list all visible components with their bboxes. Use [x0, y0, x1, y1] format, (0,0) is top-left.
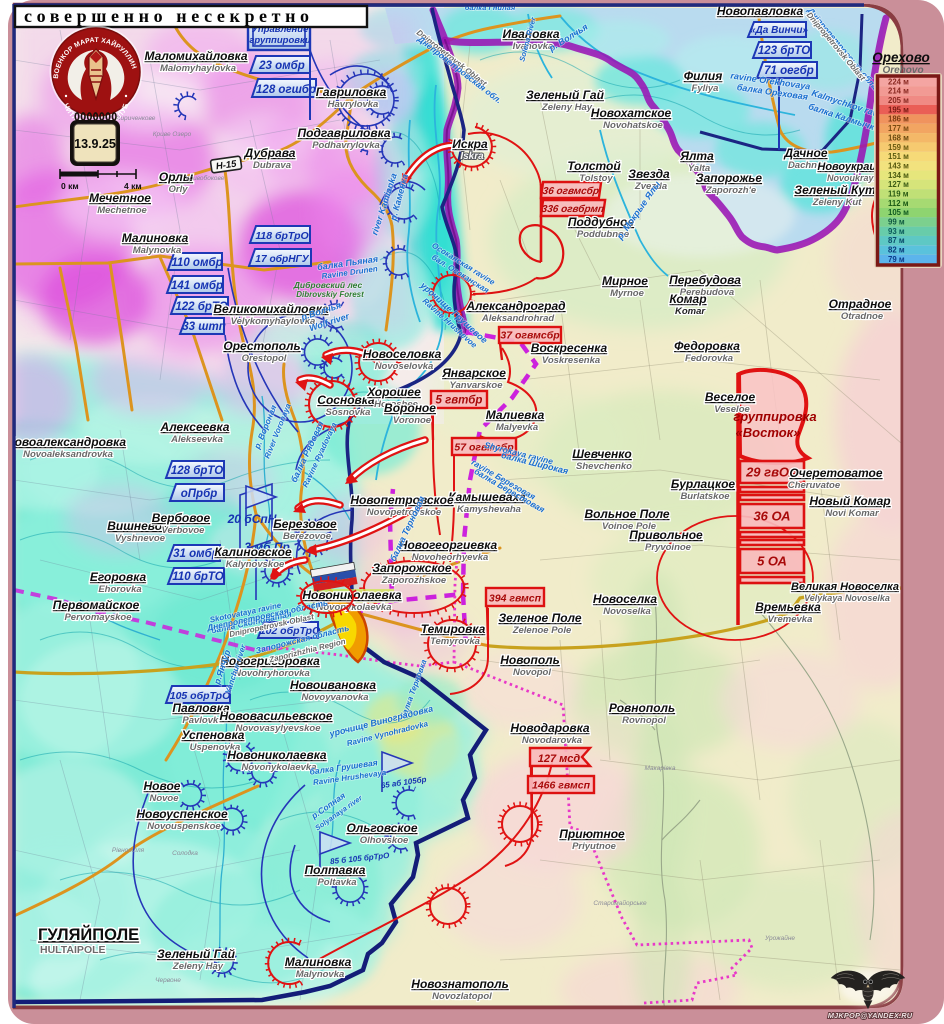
svg-text:13.9.25: 13.9.25	[74, 137, 116, 151]
svg-text:Yanvarskoe: Yanvarskoe	[450, 380, 504, 391]
svg-text:Темировка: Темировка	[421, 622, 486, 636]
svg-text:Novopol: Novopol	[513, 667, 551, 678]
svg-text:«Восток»: «Восток»	[736, 425, 801, 440]
svg-text:Zelenoe Pole: Zelenoe Pole	[512, 625, 572, 636]
svg-text:79 м: 79 м	[888, 255, 905, 264]
svg-text:HULTAIPOLE: HULTAIPOLE	[40, 944, 106, 956]
svg-text:Otradnoe: Otradnoe	[841, 311, 884, 322]
svg-text:MJKPOP@YANDEX.RU: MJKPOP@YANDEX.RU	[828, 1011, 913, 1020]
svg-text:ГУЛЯЙПОЛЕ: ГУЛЯЙПОЛЕ	[38, 925, 139, 944]
svg-text:Толстой: Толстой	[567, 159, 621, 173]
svg-text:Комар: Комар	[669, 292, 706, 306]
svg-text:Старомайорське: Старомайорське	[593, 899, 647, 907]
svg-text:Zeleny Hay: Zeleny Hay	[541, 102, 593, 113]
svg-text:Novi Komar: Novi Komar	[825, 508, 880, 519]
svg-text:Новознатополь: Новознатополь	[411, 977, 508, 991]
svg-text:Березовое: Березовое	[273, 517, 337, 531]
svg-text:Temyrovka: Temyrovka	[430, 636, 480, 647]
svg-text:Зеленый Гай: Зеленый Гай	[157, 947, 236, 961]
svg-text:Poltavka: Poltavka	[317, 877, 356, 888]
svg-text:Орестополь: Орестополь	[223, 339, 300, 353]
svg-text:Великая Новоселка: Великая Новоселка	[791, 581, 899, 593]
svg-text:Zeleny Kut: Zeleny Kut	[812, 197, 862, 208]
svg-text:123 брТО: 123 брТО	[758, 45, 810, 57]
svg-text:Новопетровское: Новопетровское	[350, 493, 454, 507]
svg-text:Макарівка: Макарівка	[645, 764, 676, 772]
svg-text:Нововасильевское: Нововасильевское	[219, 709, 332, 723]
svg-text:99 м: 99 м	[888, 218, 905, 227]
svg-text:Malynovka: Malynovka	[133, 245, 182, 256]
svg-text:118 брТрО: 118 брТрО	[255, 230, 308, 242]
svg-text:134 м: 134 м	[888, 171, 909, 180]
svg-text:105 м: 105 м	[888, 208, 909, 217]
svg-text:Voskresenka: Voskresenka	[542, 355, 600, 366]
svg-text:37 огвмсбр: 37 огвмсбр	[500, 330, 560, 342]
svg-text:Novopetrovskoe: Novopetrovskoe	[367, 507, 442, 518]
svg-text:Verbovoe: Verbovoe	[162, 525, 206, 536]
svg-text:Новониколаевка: Новониколаевка	[227, 748, 327, 762]
svg-text:оПрбр: оПрбр	[181, 488, 217, 500]
svg-text:168 м: 168 м	[888, 133, 909, 142]
svg-text:Зеленый Кут: Зеленый Кут	[794, 183, 876, 197]
svg-text:Вороное: Вороное	[384, 401, 436, 415]
svg-text:159 м: 159 м	[888, 143, 909, 152]
svg-text:Первомайское: Первомайское	[53, 598, 140, 612]
svg-text:Zeleny Hay: Zeleny Hay	[172, 961, 224, 972]
svg-text:143 м: 143 м	[888, 161, 909, 170]
svg-text:127 м: 127 м	[888, 180, 909, 189]
svg-text:141 омбр: 141 омбр	[171, 280, 223, 292]
svg-text:Орехово: Орехово	[872, 50, 930, 65]
svg-text:87 м: 87 м	[888, 236, 905, 245]
svg-text:Малиновка: Малиновка	[122, 231, 189, 245]
svg-text:394 гвмсп: 394 гвмсп	[489, 593, 542, 605]
svg-text:Новоселовка: Новоселовка	[363, 347, 442, 361]
svg-text:Кривобокове: Кривобокове	[186, 174, 225, 182]
svg-text:128 огшбр: 128 огшбр	[256, 84, 316, 96]
svg-text:17 обрНГУ: 17 обрНГУ	[255, 253, 310, 265]
svg-text:Ольговское: Ольговское	[346, 821, 417, 835]
svg-text:Malomyhaylovka: Malomyhaylovka	[160, 63, 236, 74]
svg-text:Дубрава: Дубрава	[244, 146, 296, 160]
svg-text:Mechetnoe: Mechetnoe	[97, 205, 147, 216]
svg-text:Vremevka: Vremevka	[768, 614, 813, 625]
svg-text:Fyliya: Fyliya	[692, 83, 719, 94]
svg-text:Малиновка: Малиновка	[285, 955, 352, 969]
svg-text:Звезда: Звезда	[628, 167, 670, 181]
svg-text:0 км: 0 км	[61, 181, 79, 191]
svg-text:Shevchenko: Shevchenko	[576, 461, 632, 472]
svg-text:Времьевка: Времьевка	[755, 600, 821, 614]
svg-text:Александроград: Александроград	[465, 299, 565, 313]
svg-text:127 мсд: 127 мсд	[538, 753, 581, 765]
svg-text:Dubrava: Dubrava	[253, 160, 291, 171]
svg-text:177 м: 177 м	[888, 124, 909, 133]
svg-text:Novodarovka: Novodarovka	[522, 735, 582, 746]
svg-text:5 гвтбр: 5 гвтбр	[436, 395, 483, 407]
svg-text:Pervomayskoe: Pervomayskoe	[64, 612, 132, 623]
svg-text:Воскресенка: Воскресенка	[531, 341, 608, 355]
svg-text:Burlatskoe: Burlatskoe	[680, 491, 730, 502]
svg-text:Vyshnevoe: Vyshnevoe	[115, 533, 166, 544]
svg-text:Привольное: Привольное	[629, 528, 703, 542]
svg-text:Havrylovka: Havrylovka	[328, 99, 379, 110]
svg-text:совершенно несекретно: совершенно несекретно	[24, 6, 314, 26]
svg-text:Приютное: Приютное	[559, 827, 625, 841]
svg-text:Novoaleksandrovka: Novoaleksandrovka	[23, 449, 113, 460]
svg-text:Федоровка: Федоровка	[674, 339, 740, 353]
svg-text:205 м: 205 м	[888, 96, 909, 105]
svg-text:Новое: Новое	[144, 779, 181, 793]
svg-text:Novovasylyevskoe: Novovasylyevskoe	[235, 723, 321, 734]
svg-text:112 м: 112 м	[888, 199, 909, 208]
svg-text:Новоалександровка: Новоалександровка	[6, 435, 126, 449]
svg-text:Tolstoy: Tolstoy	[579, 173, 613, 184]
svg-text:5 ОА: 5 ОА	[757, 554, 787, 569]
svg-text:119 м: 119 м	[888, 190, 909, 199]
svg-text:151 м: 151 м	[888, 152, 909, 161]
svg-text:Iskra: Iskra	[460, 151, 484, 162]
svg-text:Fedorovka: Fedorovka	[685, 353, 733, 364]
svg-text:Дачное: Дачное	[783, 146, 827, 160]
svg-text:336 огвбрмп: 336 огвбрмп	[541, 203, 605, 215]
svg-text:Novohatskoe: Novohatskoe	[603, 120, 663, 131]
svg-text:Podhavrylovka: Podhavrylovka	[312, 140, 380, 151]
svg-text:Успеновка: Успеновка	[182, 728, 245, 742]
svg-text:Рівнопілля: Рівнопілля	[112, 846, 145, 854]
svg-text:214 м: 214 м	[888, 87, 909, 96]
svg-text:Зеленое Поле: Зеленое Поле	[498, 611, 581, 625]
svg-text:Novoselka: Novoselka	[603, 606, 651, 617]
svg-text:Очеретоватое: Очеретоватое	[789, 466, 882, 480]
svg-text:Мирное: Мирное	[602, 274, 648, 288]
svg-text:Бурлацкое: Бурлацкое	[671, 477, 735, 491]
svg-text:23 омбр: 23 омбр	[258, 60, 305, 72]
svg-text:Маломихайловка: Маломихайловка	[144, 49, 247, 63]
svg-text:Orestopol: Orestopol	[242, 353, 287, 364]
svg-text:Веселое: Веселое	[705, 390, 756, 404]
svg-text:Егоровка: Егоровка	[90, 570, 147, 584]
svg-text:Новодаровка: Новодаровка	[510, 721, 590, 735]
svg-text:Kamyshevaha: Kamyshevaha	[457, 504, 521, 515]
svg-text:110 брТО: 110 брТО	[172, 571, 224, 583]
svg-text:Алексеевка: Алексеевка	[160, 420, 230, 434]
svg-text:Солодка: Солодка	[172, 849, 198, 857]
svg-text:Новохатское: Новохатское	[591, 106, 672, 120]
svg-text:Rovnopol: Rovnopol	[622, 715, 666, 726]
svg-text:Вербовое: Вербовое	[152, 511, 211, 525]
svg-text:«Да Винчи»: «Да Винчи»	[750, 25, 808, 36]
svg-text:Новый Комар: Новый Комар	[809, 494, 890, 508]
svg-text:Ehorovka: Ehorovka	[98, 584, 141, 595]
svg-text:Kalynovskoe: Kalynovskoe	[226, 559, 285, 570]
svg-text:Подгавриловка: Подгавриловка	[298, 126, 391, 140]
svg-text:Novouspenskoe: Novouspenskoe	[147, 821, 221, 832]
svg-text:Филия: Филия	[684, 69, 723, 83]
svg-text:Новоивановка: Новоивановка	[290, 678, 376, 692]
svg-text:Pryvoinoe: Pryvoinoe	[645, 542, 692, 553]
svg-text:Olhovskoe: Olhovskoe	[360, 835, 409, 846]
svg-text:Alekseevka: Alekseevka	[170, 434, 223, 445]
svg-text:20 бСпН: 20 бСпН	[227, 512, 277, 526]
svg-text:Ялта: Ялта	[679, 149, 714, 163]
svg-text:Урожайне: Урожайне	[764, 934, 795, 942]
svg-text:Novozlatopol: Novozlatopol	[432, 991, 492, 1002]
svg-text:Aleksandrohrad: Aleksandrohrad	[481, 313, 555, 324]
svg-text:Zaporozhskoe: Zaporozhskoe	[381, 575, 447, 586]
svg-text:Перебудова: Перебудова	[669, 273, 741, 287]
svg-text:31 омбр: 31 омбр	[173, 548, 219, 560]
svg-text:Хорошее: Хорошее	[366, 385, 421, 399]
svg-text:Новоуспенское: Новоуспенское	[136, 807, 228, 821]
svg-text:Калиновское: Калиновское	[214, 545, 292, 559]
svg-text:Зеленый Гай: Зеленый Гай	[526, 88, 605, 102]
svg-text:Malyevka: Malyevka	[496, 422, 538, 433]
svg-text:Отрадное: Отрадное	[829, 297, 892, 311]
svg-text:Дибровский лес: Дибровский лес	[293, 280, 363, 290]
svg-text:Cheruvatoe: Cheruvatoe	[788, 480, 841, 491]
svg-text:195 м: 195 м	[888, 105, 909, 114]
svg-text:Январское: Январское	[441, 366, 506, 380]
svg-text:Priyutnoe: Priyutnoe	[572, 841, 617, 852]
svg-text:186 м: 186 м	[888, 115, 909, 124]
svg-text:Ровнополь: Ровнополь	[609, 701, 675, 715]
svg-text:Полтавка: Полтавка	[305, 863, 366, 877]
svg-text:82 м: 82 м	[888, 246, 905, 255]
svg-text:Гавриловка: Гавриловка	[316, 85, 387, 99]
svg-text:Запорожское: Запорожское	[372, 561, 451, 575]
svg-text:93 м: 93 м	[888, 227, 905, 236]
svg-text:128 брТО: 128 брТО	[171, 465, 223, 477]
svg-text:1466 гвмсп: 1466 гвмсп	[532, 780, 591, 792]
svg-text:36 огвмсбр: 36 огвмсбр	[542, 185, 600, 197]
svg-text:Zaporozh'e: Zaporozh'e	[705, 185, 757, 196]
svg-text:Малиевка: Малиевка	[486, 408, 545, 422]
svg-text:Voronoe: Voronoe	[393, 415, 432, 426]
svg-text:Novoe: Novoe	[149, 793, 179, 804]
svg-text:Novonykolaevka: Novonykolaevka	[242, 762, 317, 773]
svg-text:Искра: Искра	[452, 137, 488, 151]
svg-text:Orly: Orly	[168, 184, 188, 195]
svg-text:110 омбр: 110 омбр	[171, 257, 222, 269]
svg-text:Шевченко: Шевченко	[572, 447, 631, 461]
svg-text:Новогеоргиевка: Новогеоргиевка	[399, 538, 498, 552]
svg-text:Червоне: Червоне	[155, 977, 181, 984]
svg-text:Sosnovka: Sosnovka	[326, 407, 371, 418]
svg-text:Veseloe: Veseloe	[714, 404, 750, 415]
svg-text:Pavlovka: Pavlovka	[182, 715, 223, 726]
svg-text:Криве Озеро: Криве Озеро	[153, 131, 192, 138]
svg-text:Berezovoe: Berezovoe	[283, 531, 332, 542]
svg-text:Мечетное: Мечетное	[89, 191, 151, 205]
svg-text:Novoselovka: Novoselovka	[375, 361, 434, 372]
svg-text:Новоселка: Новоселка	[593, 592, 657, 606]
svg-text:Myrnoe: Myrnoe	[610, 288, 645, 299]
svg-text:Вольное Поле: Вольное Поле	[584, 507, 669, 521]
svg-text:36 ОА: 36 ОА	[753, 509, 790, 524]
svg-text:224 м: 224 м	[888, 77, 909, 86]
svg-text:4 км: 4 км	[124, 181, 142, 191]
svg-text:Novoyvanovka: Novoyvanovka	[301, 692, 368, 703]
svg-text:Dibrovskiy Forest: Dibrovskiy Forest	[296, 290, 364, 299]
svg-text:Komar: Komar	[675, 306, 706, 317]
svg-text:Запорожье: Запорожье	[696, 171, 763, 185]
svg-text:группировки: группировки	[249, 35, 310, 46]
svg-text:Новополь: Новополь	[500, 653, 560, 667]
svg-text:33 штп: 33 штп	[182, 321, 225, 333]
svg-text:Malynovka: Malynovka	[296, 969, 345, 980]
